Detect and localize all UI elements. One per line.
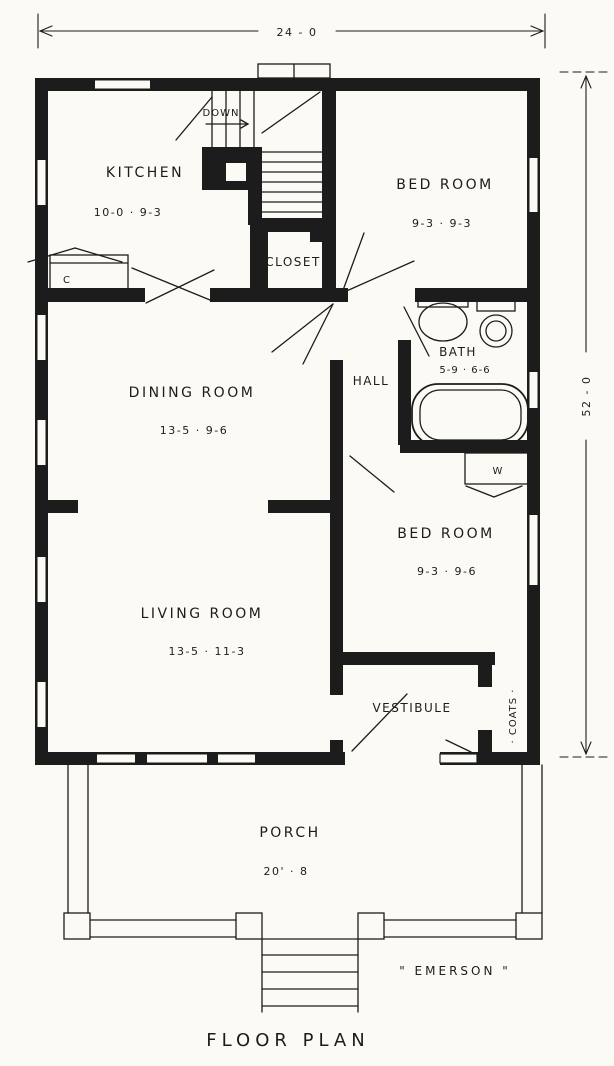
house-name: " EMERSON " <box>399 964 511 978</box>
counter-label: C <box>63 275 71 286</box>
dining-room-label: DINING ROOM <box>129 385 256 401</box>
porch-post <box>236 913 262 939</box>
drawing-caption: FLOOR PLAN <box>206 1030 369 1051</box>
coats-label: · COATS · <box>508 689 519 744</box>
living-room-label: LIVING ROOM <box>141 606 264 622</box>
kitchen-size: 10-0 · 9-3 <box>94 206 162 219</box>
dining-room-size: 13-5 · 9-6 <box>160 424 228 437</box>
bath-label: BATH <box>439 345 477 359</box>
room-labels: KITCHEN 10-0 · 9-3 BED ROOM 9-3 · 9-3 CL… <box>94 165 519 878</box>
closet-label: CLOSET <box>265 255 321 269</box>
bedroom-front-size: 9-3 · 9-3 <box>412 217 472 230</box>
overall-depth-text: 52 - 0 <box>580 376 593 417</box>
porch-post <box>516 913 542 939</box>
porch-steps <box>262 939 358 1012</box>
bedroom-front-label: BED ROOM <box>396 177 494 193</box>
bathtub-icon <box>412 384 528 446</box>
kitchen-label: KITCHEN <box>106 165 184 181</box>
wardrobe-closet: W <box>465 453 532 497</box>
stairs-down-label: DOWN <box>203 108 240 119</box>
door-swings <box>132 233 471 752</box>
bath-size: 5-9 · 6-6 <box>439 365 490 376</box>
floor-plan-drawing: 24 - 0 52 - 0 <box>0 0 614 1066</box>
front-door-sill <box>440 754 477 763</box>
porch-post <box>358 913 384 939</box>
bedroom-rear-size: 9-3 · 9-6 <box>417 565 477 578</box>
porch-post <box>64 913 90 939</box>
sink-icon <box>418 297 468 341</box>
floor-plan-sheet: 24 - 0 52 - 0 <box>0 0 614 1066</box>
wardrobe-doors <box>466 486 522 497</box>
porch-size: 20' · 8 <box>263 865 308 878</box>
living-room-size: 13-5 · 11-3 <box>169 645 246 658</box>
toilet-icon <box>477 297 515 347</box>
vestibule-label: VESTIBULE <box>372 701 451 715</box>
stairs-down: DOWN <box>176 91 254 147</box>
dimension-overall-width: 24 - 0 <box>38 14 545 48</box>
wardrobe-label: W <box>493 466 504 477</box>
overall-width-text: 24 - 0 <box>277 26 318 39</box>
bedroom-rear-label: BED ROOM <box>397 526 495 542</box>
hall-label: HALL <box>353 374 390 388</box>
dimension-overall-depth: 52 - 0 <box>560 72 612 757</box>
porch-label: PORCH <box>259 825 320 841</box>
